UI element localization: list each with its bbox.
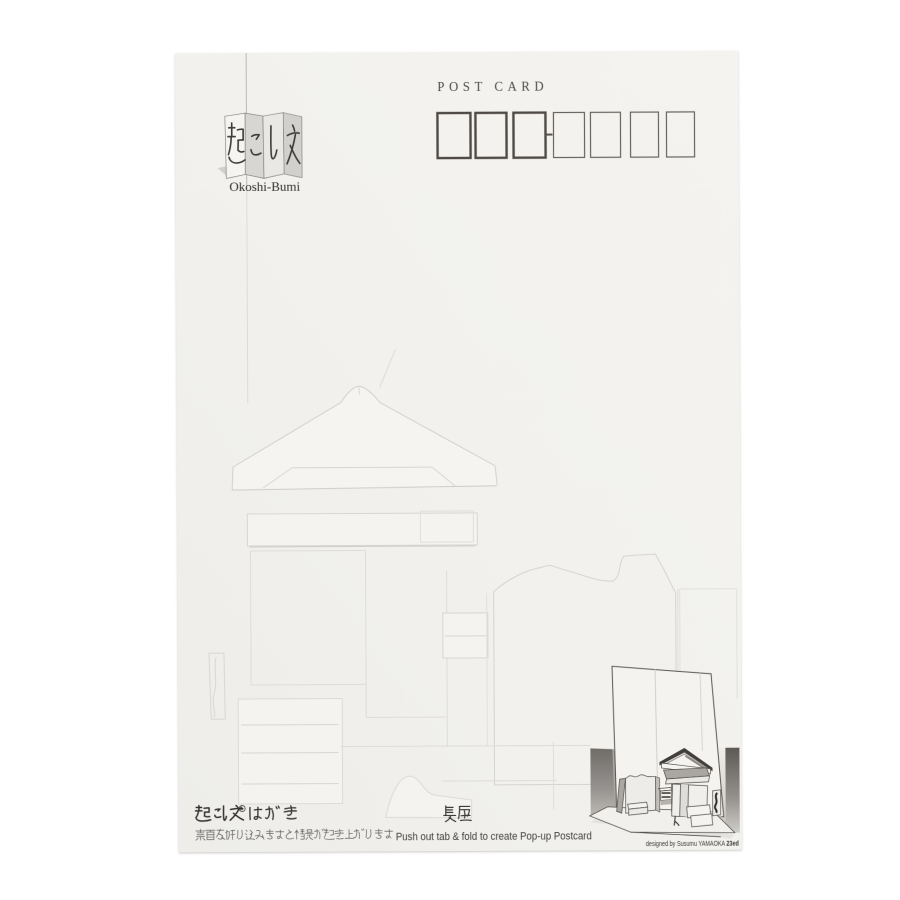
svg-text:Okoshi-Bumi: Okoshi-Bumi [229, 179, 300, 194]
svg-text:designed by Susumu YAMAOKA 23e: designed by Susumu YAMAOKA 23ed [646, 841, 739, 848]
svg-text:POST CARD: POST CARD [437, 80, 548, 96]
svg-text:Push out tab & fold to create: Push out tab & fold to create Pop-up Pos… [396, 830, 592, 843]
